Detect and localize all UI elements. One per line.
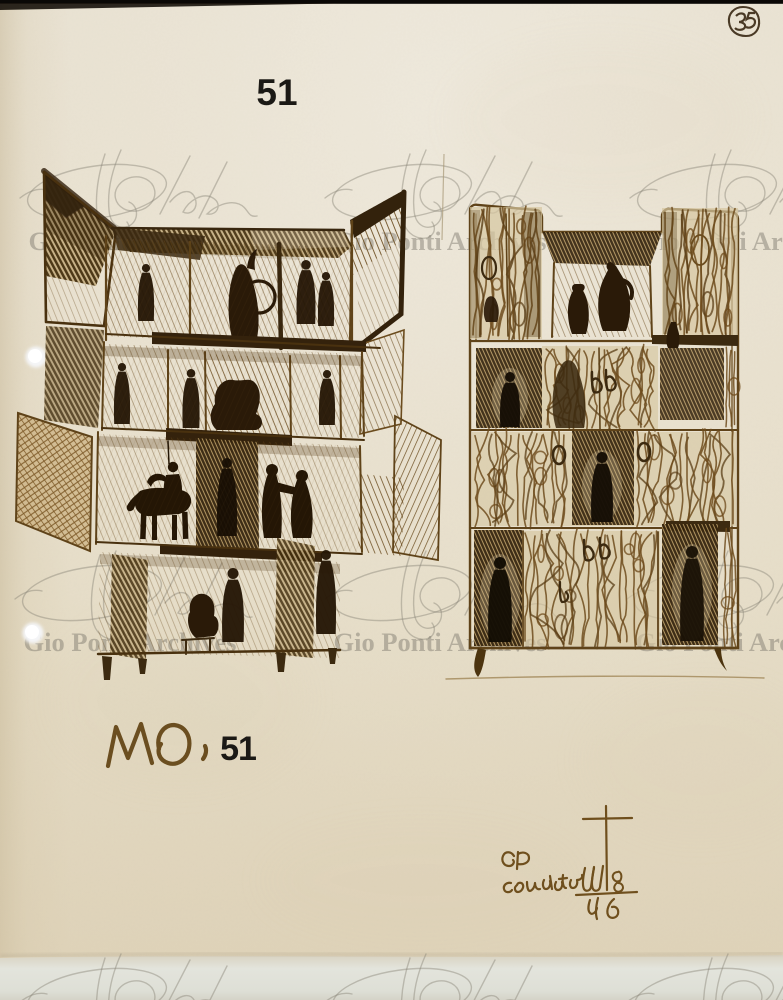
svg-text:51: 51 [220, 730, 256, 768]
svg-text:51: 51 [256, 72, 297, 113]
